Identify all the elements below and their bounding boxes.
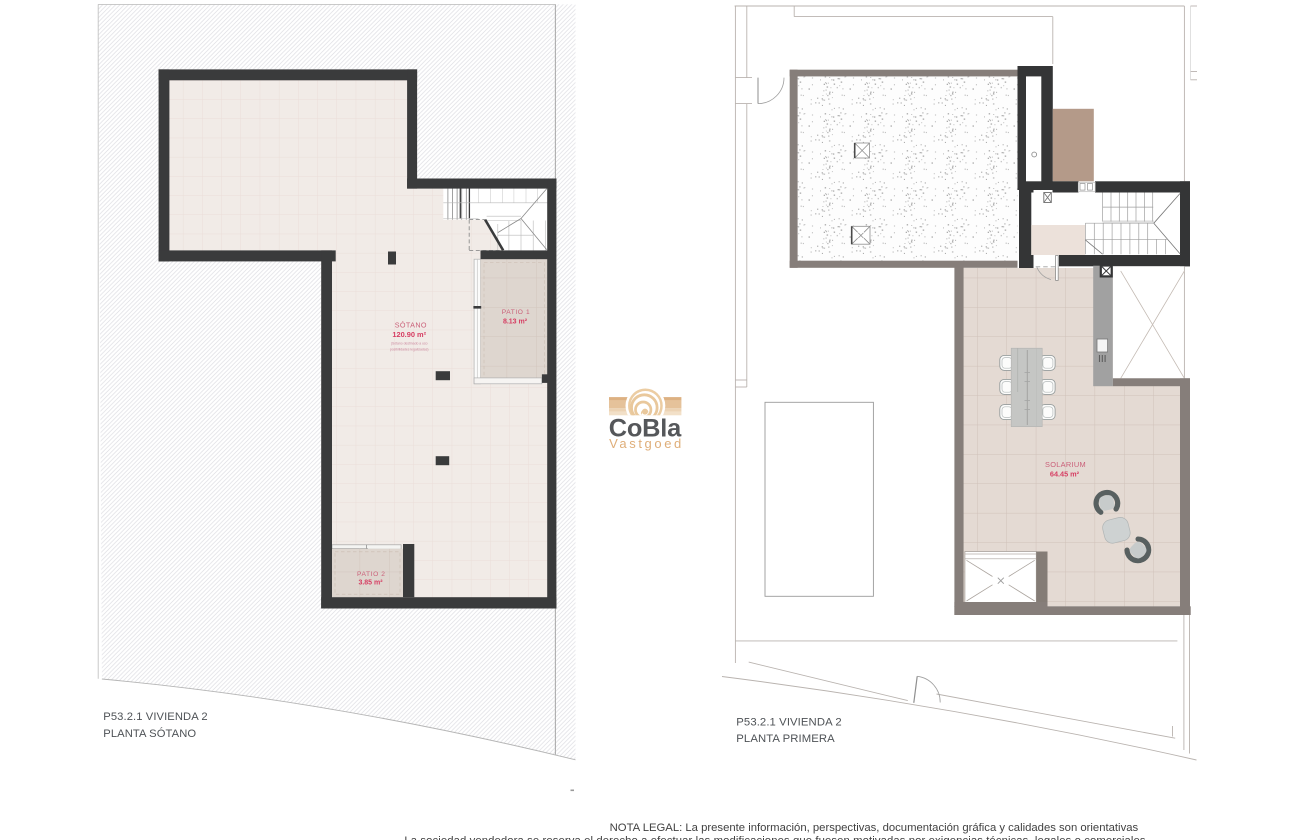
svg-text:posibilidades legalizadas): posibilidades legalizadas): [390, 347, 429, 351]
svg-text:SÓTANO: SÓTANO: [395, 320, 427, 329]
svg-text:P53.2.1 VIVIENDA 2: P53.2.1 VIVIENDA 2: [736, 716, 841, 728]
svg-text:La sociedad vendedora se reser: La sociedad vendedora se reserva el dere…: [404, 835, 1146, 840]
svg-text:PATIO 2: PATIO 2: [357, 571, 386, 578]
svg-text:PLANTA SÓTANO: PLANTA SÓTANO: [103, 727, 196, 740]
svg-text:NOTA LEGAL: La presente inform: NOTA LEGAL: La presente información, per…: [610, 822, 1139, 834]
svg-text:8.13 m²: 8.13 m²: [503, 318, 528, 325]
svg-text:PATIO 1: PATIO 1: [502, 309, 531, 316]
svg-text:64.45 m²: 64.45 m²: [1050, 469, 1080, 478]
svg-text:120.90 m²: 120.90 m²: [392, 330, 426, 339]
svg-text:3.85 m²: 3.85 m²: [358, 580, 383, 587]
svg-text:Vastgoed: Vastgoed: [609, 436, 684, 451]
svg-text:SOLARIUM: SOLARIUM: [1045, 460, 1086, 469]
svg-text:PLANTA PRIMERA: PLANTA PRIMERA: [736, 733, 835, 745]
svg-text:P53.2.1 VIVIENDA 2: P53.2.1 VIVIENDA 2: [103, 711, 207, 723]
svg-text:(Sótano destinado a uso: (Sótano destinado a uso: [391, 342, 428, 346]
